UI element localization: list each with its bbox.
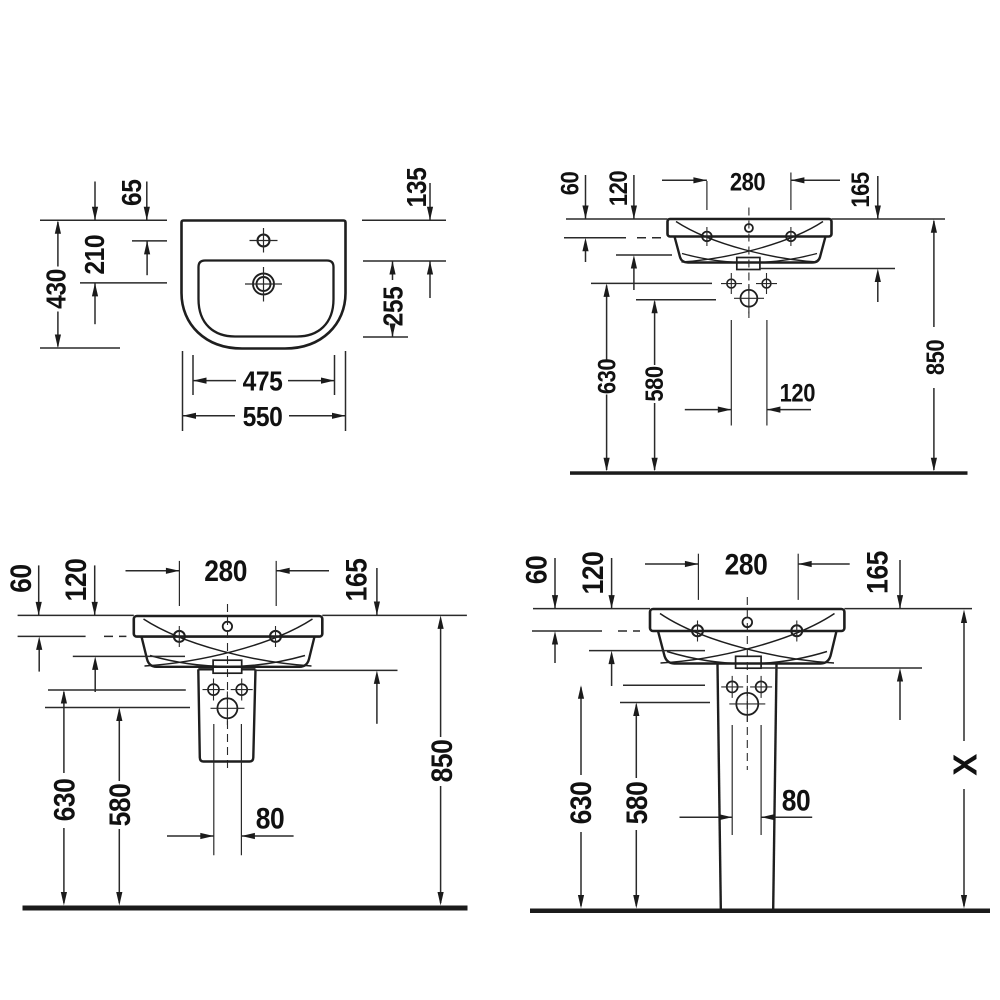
svg-text:120: 120 [58,559,92,602]
svg-text:850: 850 [921,339,949,375]
svg-text:165: 165 [339,559,373,602]
svg-text:135: 135 [401,168,433,208]
svg-text:120: 120 [575,552,609,595]
svg-text:60: 60 [519,556,553,584]
svg-text:120: 120 [604,170,632,206]
svg-text:580: 580 [640,366,668,402]
svg-text:210: 210 [78,235,110,275]
svg-text:280: 280 [725,547,768,581]
svg-text:475: 475 [243,365,283,397]
svg-text:80: 80 [256,801,284,835]
svg-text:60: 60 [556,171,584,195]
svg-text:580: 580 [619,782,653,825]
svg-text:X: X [947,754,984,776]
svg-text:430: 430 [40,269,72,309]
svg-text:630: 630 [593,358,621,394]
svg-text:280: 280 [204,553,247,587]
svg-text:255: 255 [377,287,409,327]
svg-text:630: 630 [563,782,597,825]
svg-text:280: 280 [730,168,766,196]
svg-text:65: 65 [115,179,147,206]
svg-text:165: 165 [846,172,874,208]
svg-text:120: 120 [780,379,816,407]
svg-text:165: 165 [860,551,894,594]
svg-text:550: 550 [243,400,283,432]
svg-text:580: 580 [102,784,136,827]
svg-text:60: 60 [3,564,37,592]
svg-text:630: 630 [47,779,81,822]
svg-text:80: 80 [782,783,810,817]
svg-text:850: 850 [424,740,458,783]
